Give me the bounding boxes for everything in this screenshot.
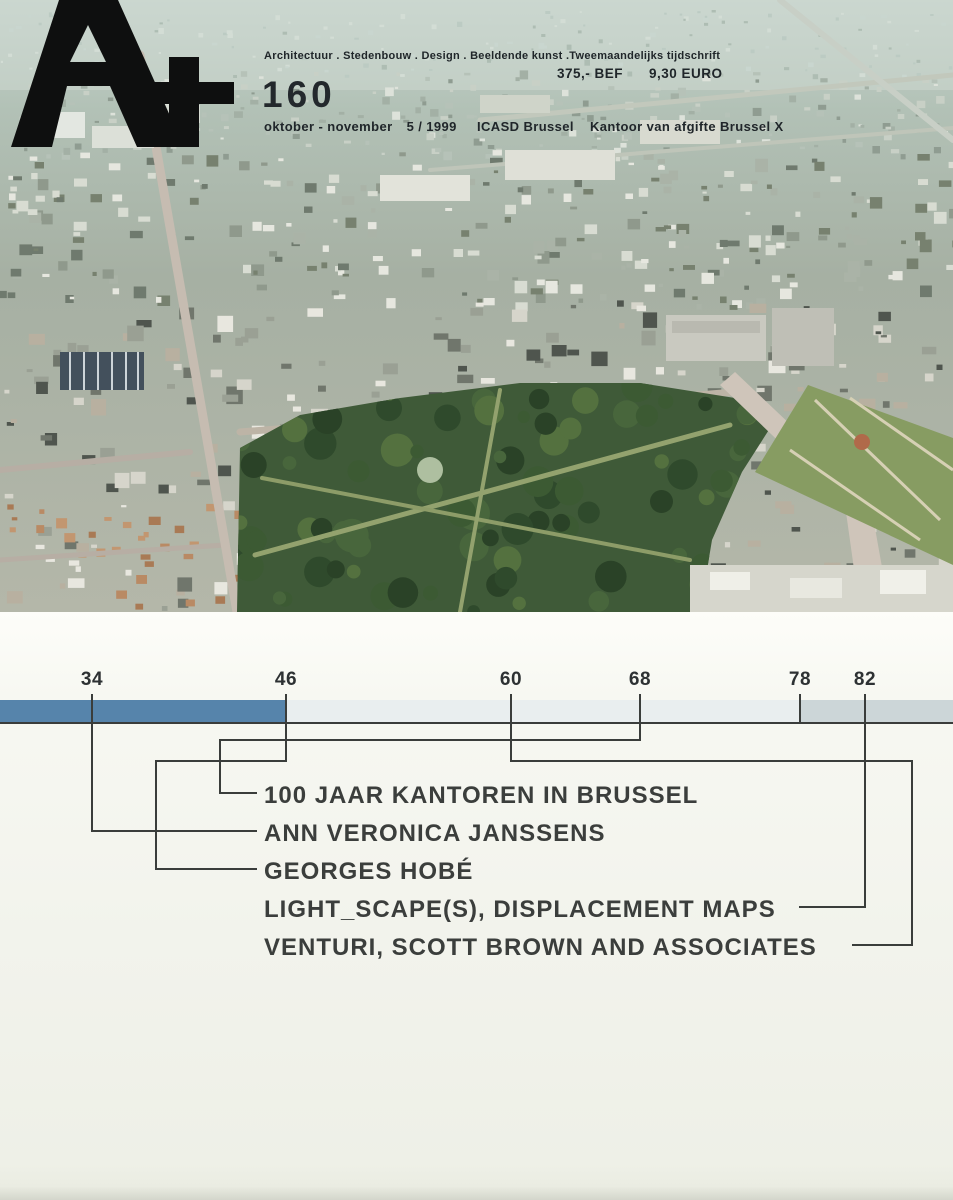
issue-number: 160 — [262, 74, 336, 116]
price-line: 375,- BEF 9,30 EURO — [557, 66, 723, 81]
tick-82 — [864, 694, 866, 722]
connector-60-h2 — [852, 944, 913, 946]
toc-item-title: VENTURI, SCOTT BROWN AND ASSOCIATES — [264, 934, 817, 962]
toc-item-title: 100 JAAR KANTOREN IN BRUSSEL — [264, 782, 698, 810]
tick-60 — [510, 694, 512, 722]
toc-item-title: GEORGES HOBÉ — [264, 858, 473, 886]
page-number-78: 78 — [789, 669, 811, 691]
scan-edge-shadow — [0, 1186, 953, 1200]
tick-46 — [285, 694, 287, 722]
page-number-60: 60 — [500, 669, 522, 691]
issue-date: oktober - november 5 / 1999 — [264, 119, 457, 134]
connector-68-h1 — [219, 739, 641, 741]
magazine-cover: Architectuur . Stedenbouw . Design . Bee… — [0, 0, 953, 1200]
toc-item-title: ANN VERONICA JANSSENS — [264, 820, 606, 848]
toc-bar-baseline — [0, 722, 953, 724]
connector-60-v1 — [510, 724, 512, 762]
page-number-68: 68 — [629, 669, 651, 691]
a-plus-logo — [6, 0, 236, 152]
tick-78 — [799, 694, 801, 722]
tick-34 — [91, 694, 93, 722]
price-euro: 9,30 EURO — [649, 66, 723, 81]
issue-date-number: 5 / 1999 — [407, 119, 457, 134]
connector-46-h1 — [155, 760, 287, 762]
postal-text: Kantoor van afgifte Brussel X — [590, 119, 784, 134]
connector-68-v2 — [219, 739, 221, 794]
connector-60-v2 — [911, 760, 913, 946]
postal-line: ICASD Brussel Kantoor van afgifte Brusse… — [477, 119, 784, 134]
connector-46-v1 — [285, 724, 287, 762]
toc-item-title: LIGHT_SCAPE(S), DISPLACEMENT MAPS — [264, 896, 776, 924]
postal-office: ICASD Brussel — [477, 119, 574, 134]
connector-82-v — [864, 724, 866, 908]
price-bef: 375,- BEF — [557, 66, 623, 81]
connector-46-v2 — [155, 760, 157, 870]
tick-68 — [639, 694, 641, 722]
toc-bar-segment-blue — [0, 700, 286, 722]
page-number-34: 34 — [81, 669, 103, 691]
issue-date-text: oktober - november — [264, 119, 393, 134]
toc-bar-segment-gray — [800, 700, 953, 722]
connector-34-v — [91, 724, 93, 832]
connector-46-h2 — [155, 868, 257, 870]
page-number-82: 82 — [854, 669, 876, 691]
connector-34-h — [91, 830, 257, 832]
connector-82-h — [799, 906, 866, 908]
connector-68-h2 — [219, 792, 257, 794]
page-number-46: 46 — [275, 669, 297, 691]
toc-bar-segment-light — [286, 700, 800, 722]
magazine-subtitle: Architectuur . Stedenbouw . Design . Bee… — [264, 50, 720, 62]
connector-60-h1 — [510, 760, 913, 762]
